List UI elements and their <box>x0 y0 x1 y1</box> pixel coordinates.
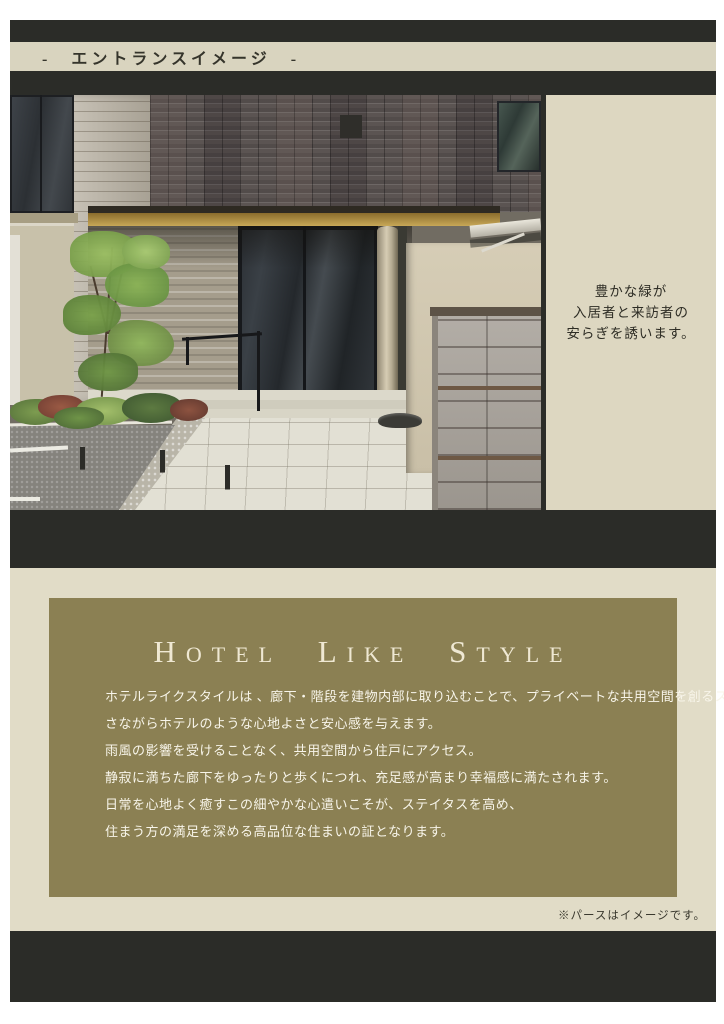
left-window <box>10 95 74 213</box>
perspective-disclaimer: ※パースはイメージです。 <box>558 907 706 923</box>
upper-right-window <box>497 101 541 172</box>
white-wall-edge <box>10 235 20 405</box>
card-paragraph: 静寂に満ちた廊下をゆったりと歩くにつれ、充足感が高まり幸福感に満たされます。 <box>105 771 637 784</box>
card-paragraph: さながらホテルのような心地よさと安心感を与えます。 <box>105 717 637 730</box>
card-paragraph: 雨風の影響を受けることなく、共用空間から住戸にアクセス。 <box>105 744 637 757</box>
tree-foliage <box>122 235 170 269</box>
bollard-light <box>160 450 165 472</box>
photo-caption: 豊かな緑が 入居者と来訪者の 安らぎを誘います。 <box>546 95 716 344</box>
section-header: - エントランスイメージ - <box>10 42 716 71</box>
card-paragraph: 日常を心地よく癒すこの細やかな心遣いこそが、ステイタスを高め、 <box>105 798 637 811</box>
stone-mound <box>378 413 422 428</box>
hotel-like-style-card: Hotel Like Style ホテルライクスタイルは 、廊下・階段を建物内部… <box>49 598 677 897</box>
brick-facade <box>150 95 541 212</box>
window-sill <box>10 213 78 223</box>
gate-pillar-cap <box>430 307 541 316</box>
tree-foliage <box>78 353 138 391</box>
parking-line-short <box>10 497 40 501</box>
left-window-mullion <box>40 95 42 213</box>
page: { "header": { "title": "- エントランスイメージ -" … <box>0 0 724 1024</box>
card-paragraph: 住まう方の満足を深める高品位な住まいの証となります。 <box>105 825 637 838</box>
bollard-light <box>80 447 85 469</box>
facade-vent <box>340 115 362 138</box>
caption-line: 安らぎを誘います。 <box>546 323 716 344</box>
caption-line: 豊かな緑が <box>546 281 716 302</box>
handrail-post <box>257 331 260 411</box>
soffit-shadow <box>88 206 500 213</box>
card-title: Hotel Like Style <box>49 634 677 670</box>
handrail-post <box>186 337 189 365</box>
section-title: - エントランスイメージ - <box>10 45 300 69</box>
entrance-rendering <box>10 95 541 510</box>
lower-band: Hotel Like Style ホテルライクスタイルは 、廊下・階段を建物内部… <box>10 568 716 931</box>
caption-line: 入居者と来訪者の <box>546 302 716 323</box>
card-body: ホテルライクスタイルは 、廊下・階段を建物内部に取り込むことで、プライベートな共… <box>105 690 637 838</box>
tree-foliage <box>105 263 169 307</box>
pillar-accent-joint <box>438 386 541 390</box>
caption-panel: 豊かな緑が 入居者と来訪者の 安らぎを誘います。 <box>546 95 716 510</box>
hero-band: - エントランスイメージ - <box>10 20 716 568</box>
gate-pillar <box>438 316 541 510</box>
bottom-bar <box>10 931 716 1002</box>
bollard-light <box>225 465 230 489</box>
card-paragraph: ホテルライクスタイルは 、廊下・階段を建物内部に取り込むことで、プライベートな共… <box>105 690 637 703</box>
wood-soffit <box>88 213 500 226</box>
pillar-accent-joint <box>438 456 541 460</box>
